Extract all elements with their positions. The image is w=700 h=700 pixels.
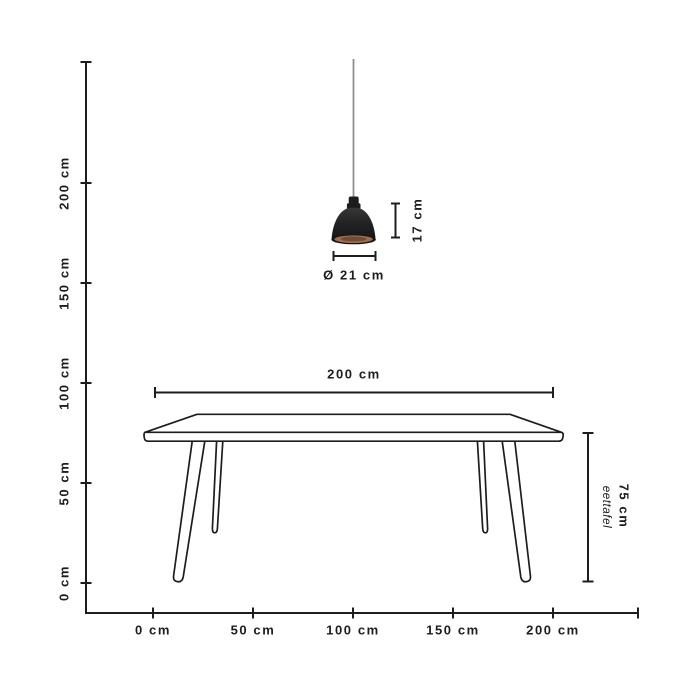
table-leg-back-right [477,441,487,533]
table-leg-front-left [174,441,205,582]
lamp-shade [332,208,376,240]
dimension-lines [155,204,594,582]
lamp-diameter-label: Ø 21 cm [323,268,385,283]
y-axis-label-50cm: 50 cm [57,461,72,506]
x-axis-label-100cm: 100 cm [326,623,380,638]
table-width-dimension [155,387,553,398]
diagram-artwork [0,0,700,700]
y-axis-label-0cm: 0 cm [57,565,72,601]
pendant-lamp [331,59,375,244]
table-name-label: eettafel [600,486,612,529]
lamp-diameter-dimension [334,251,376,261]
table-leg-front-right [502,441,530,582]
x-axis-label-50cm: 50 cm [231,623,276,638]
y-axis-label-100cm: 100 cm [57,356,72,410]
table-apron [144,432,563,441]
x-axis-label-0cm: 0 cm [135,623,171,638]
x-axis-label-150cm: 150 cm [426,623,480,638]
dimension-diagram: 200 cm 150 cm 100 cm 50 cm 0 cm 0 cm 50 … [0,0,700,700]
table-top [145,414,562,432]
lamp-height-label: 17 cm [410,198,425,243]
lamp-height-dimension [391,204,400,238]
y-axis-label-150cm: 150 cm [57,256,72,310]
table-height-dimension [583,433,594,582]
table-width-label: 200 cm [327,367,381,382]
x-axis-label-200cm: 200 cm [526,623,580,638]
table-height-label: 75 cm [617,484,632,529]
table-leg-back-left [212,441,222,533]
lamp-reflector-center [341,237,367,242]
axis-lines [86,62,638,613]
dining-table [144,414,563,581]
y-axis-label-200cm: 200 cm [57,156,72,210]
axes [81,62,639,619]
